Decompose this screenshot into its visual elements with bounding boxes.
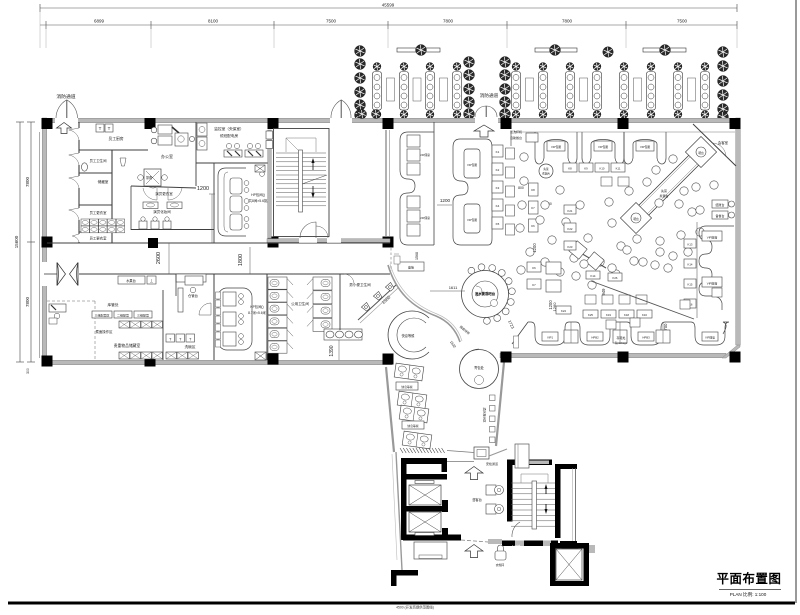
svg-text:K23: K23 (568, 245, 573, 249)
svg-text:K19: K19 (606, 313, 611, 317)
svg-text:HP包间(): HP包间() (251, 192, 265, 197)
svg-text:二组配菜: 二组配菜 (117, 312, 129, 317)
svg-text:KP包间(): KP包间() (250, 304, 263, 309)
svg-text:演员化妆间: 演员化妆间 (153, 209, 171, 214)
svg-text:酒水展示区: 酒水展示区 (483, 407, 488, 422)
svg-text:4500 (开发商提供范围线): 4500 (开发商提供范围线) (396, 605, 434, 610)
svg-text:公用卫生间: 公用卫生间 (291, 301, 309, 306)
svg-text:8.7米×5.6米: 8.7米×5.6米 (248, 310, 266, 315)
svg-text:流水景观吧台: 流水景观吧台 (475, 291, 496, 296)
svg-text:水果台: 水果台 (126, 278, 136, 283)
svg-text:300: 300 (26, 368, 30, 374)
svg-text:1200: 1200 (440, 198, 451, 203)
svg-text:7800: 7800 (443, 19, 454, 24)
svg-text:1390: 1390 (329, 345, 335, 356)
svg-text:领班配电房: 领班配电房 (220, 133, 239, 138)
svg-text:K5: K5 (496, 222, 500, 226)
svg-text:K8: K8 (531, 188, 535, 192)
svg-text:洗碗区: 洗碗区 (184, 344, 195, 349)
svg-text:T: T (99, 126, 102, 131)
svg-text:K26: K26 (613, 276, 618, 280)
svg-text:吧台: 吧台 (698, 151, 704, 155)
svg-text:K18: K18 (624, 313, 629, 317)
svg-text:K7: K7 (532, 283, 536, 287)
svg-text:K14: K14 (688, 263, 693, 267)
svg-text:VIP包厢: VIP包厢 (598, 145, 608, 149)
svg-text:K13: K13 (688, 243, 693, 247)
svg-text:1200: 1200 (197, 186, 209, 192)
svg-text:VIP座席: VIP座席 (420, 153, 430, 157)
svg-text:VIP包厢: VIP包厢 (640, 145, 650, 149)
svg-text:先菜: 先菜 (661, 188, 667, 193)
svg-text:K10: K10 (600, 167, 605, 171)
svg-text:7500: 7500 (677, 19, 688, 24)
svg-text:仓管台: 仓管台 (188, 293, 199, 298)
svg-text:949: 949 (601, 288, 606, 296)
svg-text:办公室: 办公室 (161, 153, 173, 159)
svg-text:吧台: 吧台 (633, 217, 639, 221)
svg-text:K1: K1 (496, 150, 500, 154)
svg-text:1260: 1260 (552, 302, 557, 312)
svg-text:K15: K15 (688, 283, 693, 287)
svg-text:1:10坡: 1:10坡 (512, 544, 520, 548)
svg-text:HPB3: HPB3 (642, 336, 650, 340)
svg-text:45599: 45599 (382, 3, 395, 8)
svg-text:7500: 7500 (326, 19, 337, 24)
svg-text:煮面操作区: 煮面操作区 (96, 329, 114, 334)
svg-text:三组配菜: 三组配菜 (137, 312, 149, 317)
svg-text:共8间×5.6挑: 共8间×5.6挑 (249, 198, 268, 203)
svg-text:员工厨房: 员工厨房 (108, 136, 123, 141)
svg-text:员工更衣室: 员工更衣室 (90, 236, 108, 241)
svg-text:2600: 2600 (156, 252, 162, 264)
svg-text:VIP座席: VIP座席 (707, 281, 718, 286)
svg-text:储藏室: 储藏室 (98, 179, 109, 184)
svg-text:K2: K2 (496, 168, 500, 172)
svg-text:衣帽间: 衣帽间 (496, 563, 505, 567)
svg-text:VIP包厢: VIP包厢 (551, 145, 561, 149)
svg-text:PLAN 比例: 1:100: PLAN 比例: 1:100 (730, 591, 767, 598)
svg-text:结账台: 结账台 (715, 202, 724, 207)
svg-text:先菜: 先菜 (543, 167, 549, 171)
svg-text:监控室（央保室）: 监控室（央保室） (214, 126, 244, 131)
svg-text:K8: K8 (568, 167, 572, 171)
svg-text:安检通道: 安检通道 (486, 461, 498, 466)
svg-text:1800: 1800 (238, 254, 244, 266)
svg-text:7800: 7800 (562, 19, 573, 24)
svg-text:煮漏台: 煮漏台 (659, 193, 668, 198)
svg-text:存鞋处: 存鞋处 (616, 335, 625, 340)
svg-text:700: 700 (663, 323, 668, 331)
svg-text:消防通道: 消防通道 (480, 92, 499, 99)
svg-text:K3: K3 (496, 186, 500, 190)
svg-text:三组配菜区: 三组配菜区 (94, 312, 109, 317)
svg-text:K21: K21 (568, 209, 573, 213)
svg-text:咨客台: 咨客台 (472, 497, 482, 502)
svg-text:T: T (108, 126, 111, 131)
svg-text:K24: K24 (561, 309, 566, 313)
svg-text:6899: 6899 (94, 19, 105, 24)
svg-text:K6: K6 (531, 224, 535, 228)
svg-text:1200: 1200 (532, 243, 537, 253)
svg-text:男小便卫生间: 男小便卫生间 (349, 282, 371, 287)
svg-text:15600: 15600 (14, 235, 19, 248)
svg-text:贵重物品储藏室: 贵重物品储藏室 (114, 343, 141, 348)
svg-text:员工更衣室: 员工更衣室 (90, 210, 108, 215)
svg-text:VIP1: VIP1 (547, 336, 554, 340)
svg-text:VIP包厢: VIP包厢 (467, 218, 477, 222)
svg-text:VIP座席: VIP座席 (420, 216, 430, 220)
svg-text:K16: K16 (642, 313, 647, 317)
svg-text:员工卫生间: 员工卫生间 (90, 158, 108, 163)
svg-text:K11: K11 (616, 167, 621, 171)
svg-text:7800: 7800 (25, 296, 30, 307)
svg-text:平面布置图: 平面布置图 (717, 571, 782, 586)
svg-text:快息等候: 快息等候 (401, 385, 412, 389)
svg-text:快息等候: 快息等候 (407, 424, 418, 428)
svg-text:K25: K25 (588, 313, 593, 317)
svg-text:快息等候: 快息等候 (402, 333, 416, 338)
svg-text:VIP座席: VIP座席 (707, 235, 718, 240)
svg-text:HPB2: HPB2 (591, 336, 599, 340)
svg-text:茶角: 茶角 (146, 175, 152, 180)
svg-text:K4: K4 (496, 204, 500, 208)
svg-text:VIP座席: VIP座席 (705, 336, 715, 340)
svg-text:1611: 1611 (449, 285, 458, 290)
svg-text:库管处: 库管处 (107, 302, 118, 307)
svg-text:8100: 8100 (208, 19, 219, 24)
svg-text:K22: K22 (568, 227, 573, 231)
svg-text:寄包处: 寄包处 (474, 365, 484, 370)
svg-text:烫洗杯机: 烫洗杯机 (510, 129, 522, 134)
svg-text:7800: 7800 (25, 176, 30, 187)
svg-text:1568: 1568 (415, 252, 419, 260)
svg-text:K9: K9 (584, 167, 588, 171)
svg-text:K14: K14 (591, 274, 596, 278)
svg-text:K7: K7 (531, 206, 535, 210)
svg-text:消防通道: 消防通道 (56, 93, 75, 100)
svg-text:煮漏台: 煮漏台 (542, 172, 550, 176)
svg-text:VIP包厢: VIP包厢 (467, 163, 477, 167)
svg-text:自助餐台: 自助餐台 (510, 135, 522, 140)
svg-text:800: 800 (518, 186, 524, 190)
svg-text:备餐台: 备餐台 (715, 213, 724, 218)
svg-text:演员更衣室: 演员更衣室 (155, 191, 173, 196)
svg-text:存package: 存package (615, 341, 628, 345)
svg-text:会客室: 会客室 (718, 140, 729, 145)
svg-text:座等: 座等 (408, 265, 414, 270)
svg-text:K6: K6 (532, 266, 536, 270)
